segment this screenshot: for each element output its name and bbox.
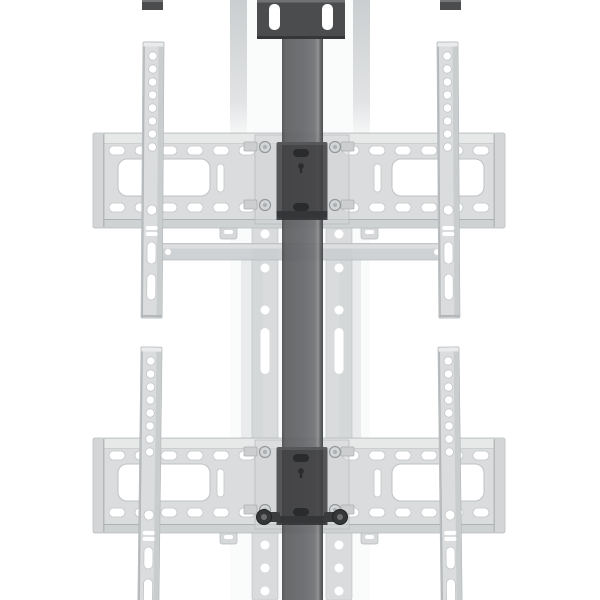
top-mounting-plate <box>257 0 345 39</box>
upper-left-vesa-rail <box>141 42 164 318</box>
left-rail-end-cap <box>142 0 163 10</box>
product-image <box>0 0 600 600</box>
lower-left-vesa-rail <box>138 347 162 600</box>
right-adapter-strip <box>326 224 352 600</box>
tv-mount-render <box>0 0 600 600</box>
right-rail-end-cap <box>440 0 461 10</box>
upper-right-vesa-rail <box>437 42 460 318</box>
upper-column-bracket <box>277 142 328 220</box>
lower-right-vesa-rail <box>438 347 462 600</box>
lower-column-bracket <box>277 447 328 525</box>
left-adapter-strip <box>252 224 278 600</box>
